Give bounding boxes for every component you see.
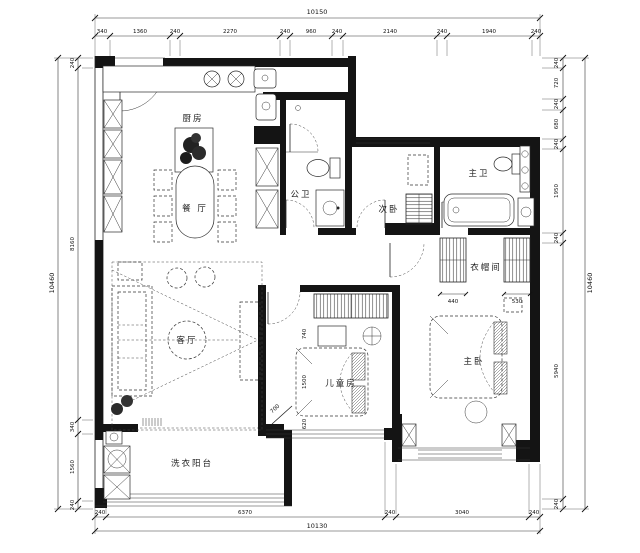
prep-sink-symbol	[256, 94, 276, 120]
dim-label: 1360	[133, 29, 147, 35]
wardrobe-symbol	[440, 238, 530, 282]
toilet-symbol	[307, 158, 340, 178]
bathtub-symbol	[444, 194, 514, 226]
room-label-second-bedroom: 次卧	[378, 204, 399, 215]
desk-symbol	[408, 155, 428, 185]
dim-label: 1950	[554, 184, 560, 198]
chair-symbol	[167, 268, 187, 288]
stool-symbol	[465, 401, 487, 423]
dim-label: 1940	[482, 29, 496, 35]
dim-label: 960	[306, 29, 317, 35]
dim-label: 240	[554, 498, 560, 509]
kitchen-area: 厨房 餐 厅	[103, 66, 278, 242]
floor-plan-canvas: 10150 340 1360 240 2270 240 960 240 2140…	[0, 0, 640, 553]
kids-room: 740 1500 620 700 儿童房	[269, 294, 388, 429]
closet-dim-right: 530	[512, 299, 523, 305]
dimension-right: 240 720 240 680 240 1950 240 5940 240 10…	[542, 55, 594, 512]
dim-label: 240	[385, 510, 396, 516]
room-label-master-bath: 主卫	[468, 168, 489, 179]
ac-unit-symbol	[402, 424, 516, 446]
side-table-symbol	[118, 262, 142, 280]
room-label-kitchen: 厨房	[182, 113, 203, 124]
chair-symbol	[195, 267, 215, 287]
dim-total-bottom: 10130	[307, 522, 328, 530]
wardrobe-symbol	[406, 194, 432, 224]
dim-total-top: 10150	[307, 8, 328, 16]
oven-tower	[256, 148, 278, 228]
dim-label: 240	[280, 29, 291, 35]
wardrobe-symbol	[314, 294, 388, 318]
kids-door-arc	[268, 292, 300, 324]
dim-label: 720	[554, 77, 560, 88]
kids-dim-diag: 700	[269, 403, 281, 415]
living-zone-outline	[112, 262, 262, 430]
guest-bath: 公卫	[290, 106, 344, 227]
vanity-symbol	[316, 190, 344, 226]
sofa-symbol	[112, 286, 152, 396]
living-room: 客厅	[111, 262, 262, 430]
closet-door-arc	[390, 243, 424, 277]
second-bedroom: 次卧	[378, 155, 432, 224]
dim-label: 240	[70, 57, 76, 68]
kids-dim-mid: 1500	[302, 375, 308, 389]
showerhead-symbol	[296, 106, 301, 111]
master-bedroom: 主卧	[430, 298, 522, 423]
dim-label: 2270	[223, 29, 237, 35]
fan-symbol	[363, 327, 381, 345]
dimension-left: 240 8160 340 1560 240 10460	[48, 55, 93, 512]
dim-label: 240	[437, 29, 448, 35]
dimension-top: 10150 340 1360 240 2270 240 960 240 2140…	[92, 8, 543, 56]
plant-box	[175, 128, 213, 172]
dim-label: 240	[554, 138, 560, 149]
room-label-laundry-balcony: 洗衣阳台	[171, 458, 213, 469]
dim-label: 3040	[455, 510, 469, 516]
tv-cabinet-symbol	[240, 302, 260, 380]
dim-label: 6370	[238, 510, 252, 516]
desk-symbol	[318, 326, 346, 346]
dim-label: 240	[554, 232, 560, 243]
vanity-symbol	[520, 146, 530, 192]
closet: 440 530 衣帽间	[438, 238, 532, 305]
dim-total-right: 10460	[586, 273, 594, 294]
laundry-sink-symbol	[106, 431, 122, 444]
dim-label: 240	[554, 57, 560, 68]
dim-label: 240	[554, 98, 560, 109]
dim-label: 680	[554, 118, 560, 129]
room-label-guest-bath: 公卫	[290, 190, 311, 200]
kitchen-sink-symbol	[254, 69, 276, 88]
room-label-master-bedroom: 主卧	[463, 356, 484, 367]
kids-dim-bottom: 620	[302, 418, 308, 429]
closet-dim-left: 440	[448, 299, 459, 305]
dim-label: 1560	[70, 460, 76, 474]
walls	[95, 56, 540, 508]
kids-dim-top: 740	[302, 328, 308, 339]
dimension-bottom: 240 6370 240 3040 240 10130	[92, 442, 543, 534]
dim-label: 340	[97, 29, 108, 35]
room-label-living: 客厅	[176, 335, 197, 346]
dryer-symbol	[104, 475, 130, 499]
dim-label: 240	[531, 29, 542, 35]
room-label-kids-room: 儿童房	[325, 378, 357, 389]
doors	[120, 66, 468, 428]
dim-label: 2140	[383, 29, 397, 35]
dim-total-left: 10460	[48, 273, 56, 294]
dim-label: 240	[170, 29, 181, 35]
washbasin-symbol	[518, 198, 534, 226]
dim-label: 5940	[554, 364, 560, 378]
room-label-dining: 餐 厅	[182, 204, 208, 214]
dim-label: 340	[70, 421, 76, 432]
dim-label: 8160	[70, 237, 76, 251]
dim-label: 240	[529, 510, 540, 516]
dim-label: 240	[332, 29, 343, 35]
laundry-balcony: 洗衣阳台	[104, 431, 213, 499]
room-label-closet: 衣帽间	[470, 262, 502, 273]
tall-cabinets	[104, 100, 122, 232]
washer-symbol	[104, 446, 130, 473]
dim-label: 240	[70, 499, 76, 510]
shower-door-arc	[290, 124, 318, 152]
dim-label: 240	[95, 510, 106, 516]
bath-door-arc	[286, 200, 314, 228]
toilet-symbol	[494, 154, 520, 174]
master-bath: 主卫	[444, 146, 534, 226]
